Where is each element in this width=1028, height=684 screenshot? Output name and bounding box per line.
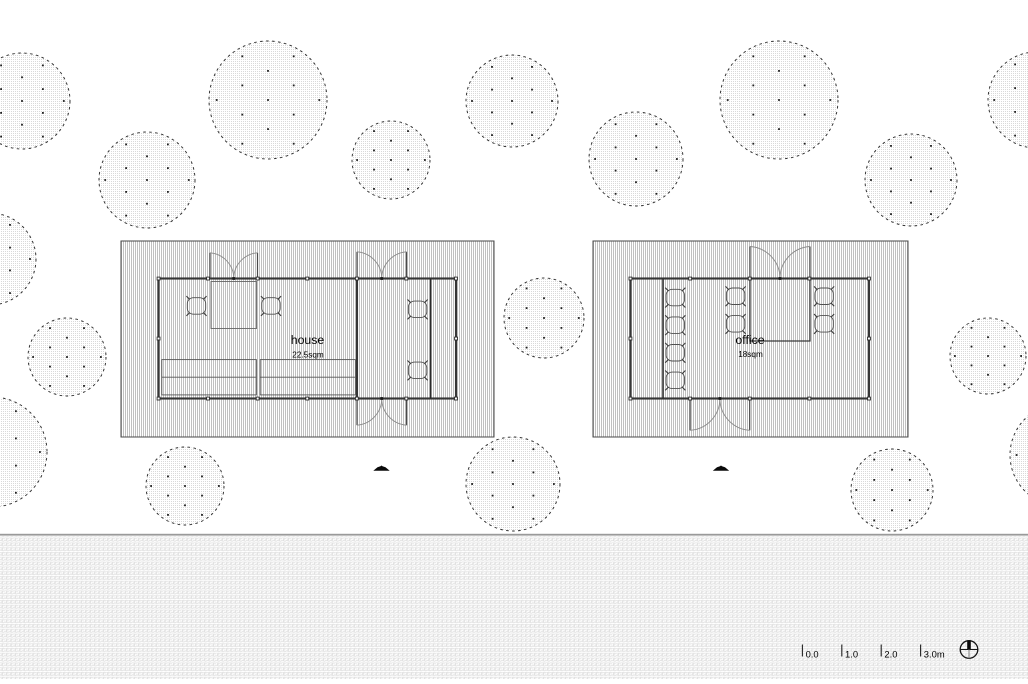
- svg-text:18sqm: 18sqm: [738, 350, 763, 359]
- svg-text:house: house: [291, 333, 325, 347]
- svg-text:22.5sqm: 22.5sqm: [292, 351, 324, 360]
- svg-text:3.0m: 3.0m: [924, 649, 945, 660]
- svg-text:1.0: 1.0: [845, 649, 858, 660]
- svg-text:2.0: 2.0: [884, 649, 897, 660]
- svg-text:office: office: [735, 333, 764, 347]
- svg-text:0.0: 0.0: [806, 649, 819, 660]
